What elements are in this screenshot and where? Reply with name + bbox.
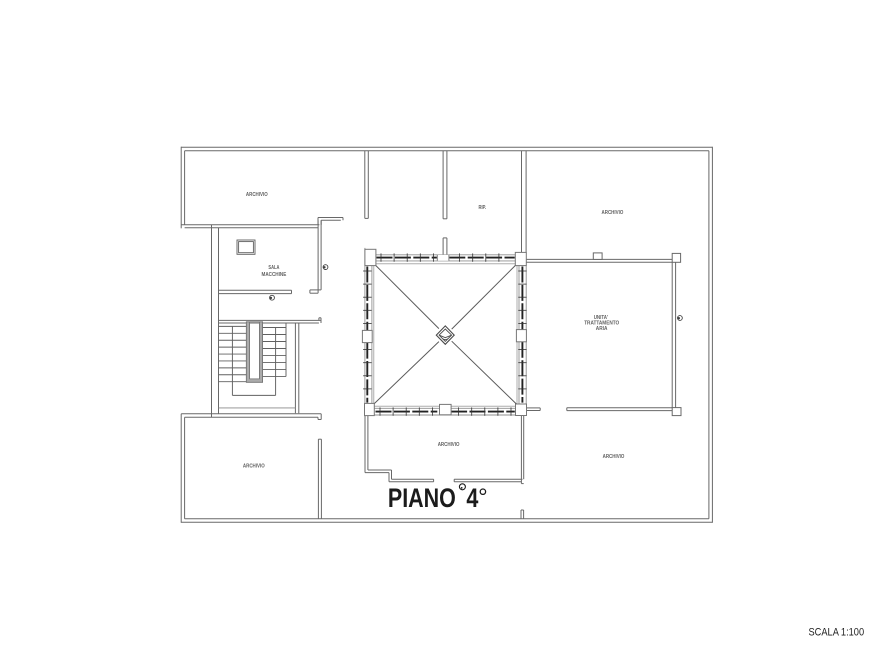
- svg-text:ARCHIVIO: ARCHIVIO: [246, 192, 268, 198]
- svg-text:ARCHIVIO: ARCHIVIO: [603, 454, 625, 460]
- svg-text:PIANO: PIANO: [388, 483, 456, 513]
- svg-text:MACCHINE: MACCHINE: [262, 272, 287, 278]
- svg-text:ARCHIVIO: ARCHIVIO: [243, 463, 265, 469]
- svg-text:RIP.: RIP.: [479, 205, 487, 211]
- svg-text:SCALA 1:100: SCALA 1:100: [809, 626, 865, 638]
- svg-text:ARCHIVIO: ARCHIVIO: [602, 210, 624, 216]
- svg-text:ARCHIVIO: ARCHIVIO: [438, 442, 460, 448]
- svg-text:SALA: SALA: [268, 265, 279, 271]
- svg-text:4: 4: [466, 483, 478, 513]
- svg-text:ARIA: ARIA: [596, 326, 608, 332]
